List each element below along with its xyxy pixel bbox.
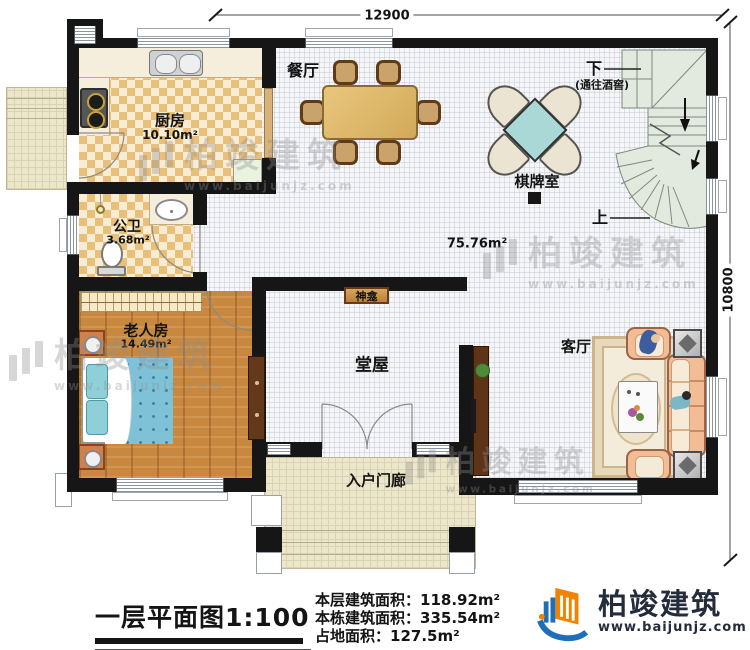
nightstand (78, 330, 105, 356)
window (116, 478, 224, 492)
porch-pillar-base (256, 552, 282, 574)
tv (471, 399, 476, 433)
room-area-bath: 3.68m² (106, 235, 149, 246)
title-rule-thick (95, 638, 303, 644)
dimension-top-label: 12900 (360, 10, 413, 23)
wardrobe-rail (81, 302, 203, 303)
stairs-up-label: 上 (592, 210, 608, 226)
column (528, 192, 541, 204)
room-label-chess: 棋牌室 (514, 175, 559, 190)
flower (634, 405, 640, 411)
wall (262, 158, 276, 194)
dining-chair (416, 100, 441, 125)
dining-table (322, 85, 418, 140)
burner (87, 93, 105, 111)
stat-land-area: 占地面积：127.5m² (315, 625, 460, 646)
plan-title: 一层平面图1:100 (95, 598, 311, 634)
room-label-bath: 公卫 (113, 220, 141, 234)
pillow (86, 364, 108, 399)
fridge (233, 159, 262, 184)
porch-step (264, 542, 476, 543)
burner (87, 111, 105, 129)
armchair-cushion (635, 456, 664, 478)
porch-step (264, 530, 476, 531)
window-sill (112, 492, 228, 501)
wall (67, 291, 79, 478)
brand-logo-icon (536, 582, 592, 642)
wall (193, 192, 207, 225)
open-area-label: 75.76m² (447, 238, 507, 251)
window-sill (718, 97, 727, 140)
side-table (673, 451, 702, 480)
room-area-elder: 14.49m² (120, 339, 171, 350)
nightstand (78, 444, 105, 470)
bed-sheet-fold (105, 358, 132, 444)
living-tv-cabinet (473, 346, 489, 476)
room-label-dining: 餐厅 (287, 63, 319, 79)
window-sill (137, 28, 230, 37)
toilet-tank (97, 266, 126, 276)
sink-basin (179, 54, 201, 74)
window-sill (718, 180, 727, 213)
light-fixture (96, 205, 105, 214)
room-label-elder: 老人房 (123, 324, 168, 339)
dining-chair (333, 60, 358, 85)
window (137, 38, 230, 48)
person-head (682, 391, 691, 400)
window-sill (59, 218, 67, 252)
room-label-porch: 入户门廊 (346, 474, 406, 489)
window (706, 95, 718, 142)
floor-plan-canvas: 神龛 (0, 0, 750, 650)
room-label-hall: 堂屋 (355, 358, 389, 375)
bedroom-tv-cabinet (248, 356, 265, 440)
side-patio-floor (6, 87, 67, 190)
porch-side-step (251, 495, 282, 526)
side-table (673, 329, 702, 358)
wall (262, 38, 276, 88)
stairs-down-note: (通往酒窖) (575, 80, 629, 91)
brand-logo-block: 柏竣建筑 www.baijunjz.com (534, 580, 749, 644)
bed (82, 357, 172, 443)
patio-step (6, 98, 67, 99)
flue-vent (74, 26, 96, 44)
plant (475, 363, 490, 378)
cabinet-handle (255, 381, 259, 385)
window (416, 444, 450, 455)
brand-name: 柏竣建筑 (598, 589, 747, 619)
stat-label: 占地面积： (315, 627, 390, 645)
porch-pillar-base (449, 552, 475, 574)
patio-step (6, 118, 67, 119)
window-sill (305, 28, 393, 37)
porch-pillar (256, 527, 282, 552)
room-label-kitchen: 厨房 (155, 114, 185, 129)
window-sill (514, 495, 642, 504)
cabinet-handle (255, 413, 259, 417)
dining-chair (333, 140, 358, 165)
table-dot (636, 392, 640, 396)
flower-leaf (636, 413, 644, 421)
window (518, 480, 638, 493)
kitchen-sink (149, 50, 203, 76)
side-table-inlay (678, 456, 696, 474)
window-sill (718, 378, 727, 436)
person-head (651, 334, 660, 343)
armchair (626, 449, 671, 481)
shrine-cabinet: 神龛 (344, 287, 389, 304)
window (305, 38, 393, 48)
bath-sink (155, 199, 188, 221)
wall (67, 182, 276, 194)
table-dot (627, 390, 631, 394)
patio-step (6, 108, 67, 109)
stove (80, 88, 108, 128)
room-area-kitchen: 10.10m² (142, 129, 198, 141)
wall (67, 48, 79, 135)
room-label-living: 客厅 (561, 340, 591, 355)
lamp (84, 336, 102, 354)
drain-dot (170, 210, 173, 213)
plan-title-block: 一层平面图1:100 (95, 598, 311, 650)
window (706, 178, 718, 215)
lamp (84, 450, 102, 468)
stat-value: 127.5m² (390, 627, 460, 645)
window (267, 444, 291, 455)
coffee-table (618, 381, 658, 433)
shrine-label: 神龛 (356, 288, 378, 304)
sliding-door (264, 88, 273, 158)
wall (67, 277, 207, 291)
porch-pillar (449, 527, 475, 552)
brand-url: www.baijunjz.com (598, 620, 747, 635)
porch-step (264, 554, 476, 555)
watermark-logo-icon (22, 348, 30, 374)
window (706, 376, 718, 438)
side-table-inlay (678, 334, 696, 352)
dining-chair (376, 140, 401, 165)
dining-chair (376, 60, 401, 85)
dimension-right-label: 10800 (723, 263, 736, 316)
stairs-down-label: 下 (586, 61, 602, 77)
wardrobe (80, 292, 202, 312)
sink-basin (155, 54, 177, 74)
pillow (86, 400, 108, 435)
window (67, 215, 79, 255)
